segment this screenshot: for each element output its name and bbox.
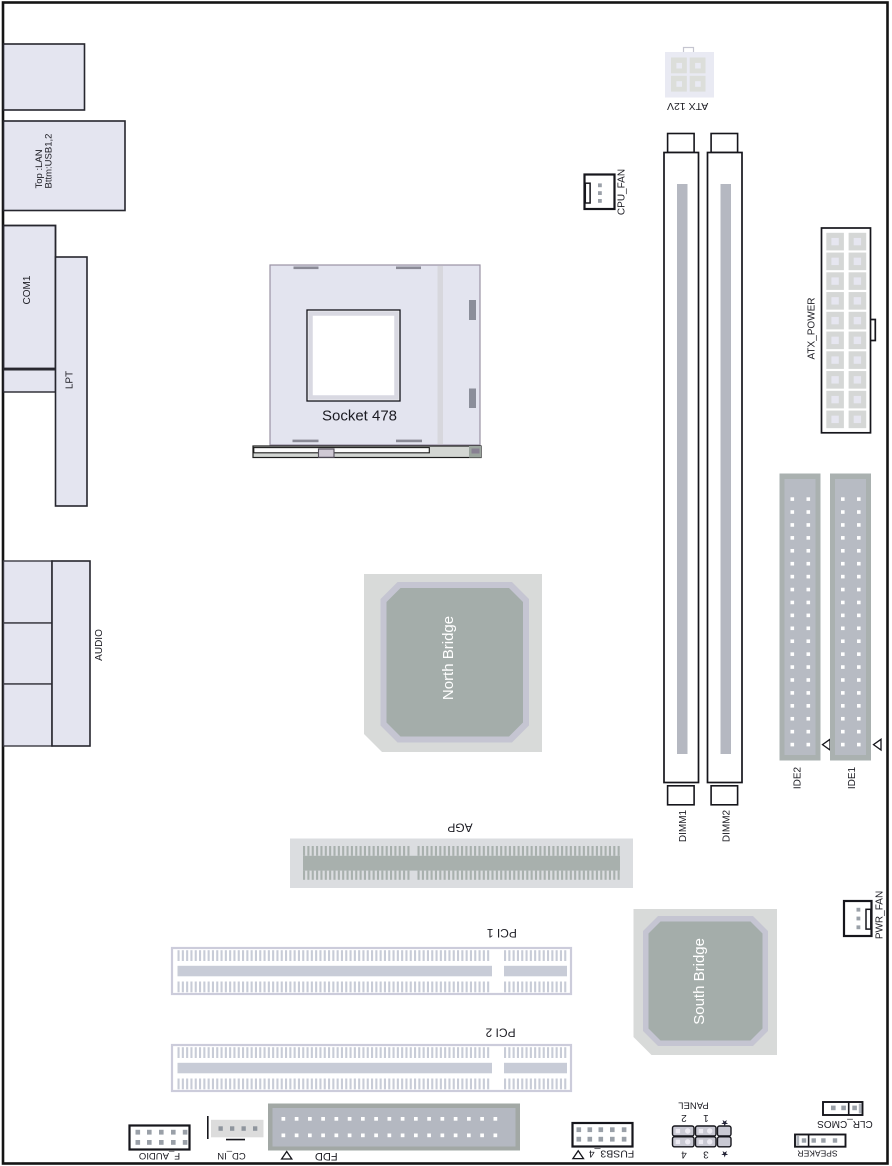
svg-text:CD_IN: CD_IN	[217, 1150, 246, 1161]
svg-text:ATX 12V: ATX 12V	[667, 100, 708, 112]
svg-text:DIMM1: DIMM1	[678, 809, 689, 842]
svg-text:PCI 1: PCI 1	[487, 926, 517, 940]
svg-text:1: 1	[703, 1112, 709, 1123]
svg-text:AUDIO: AUDIO	[94, 629, 105, 661]
svg-text:3: 3	[703, 1148, 709, 1159]
svg-text:★: ★	[721, 1149, 729, 1159]
svg-text:SPEAKER: SPEAKER	[797, 1148, 837, 1158]
svg-text:COM1: COM1	[22, 275, 33, 304]
svg-text:DIMM2: DIMM2	[722, 809, 733, 842]
svg-text:IDE1: IDE1	[847, 766, 858, 789]
svg-text:CLR_CMOS: CLR_CMOS	[817, 1118, 873, 1129]
svg-text:PANEL: PANEL	[678, 1100, 708, 1111]
svg-text:AGP: AGP	[447, 821, 472, 835]
svg-text:IDE2: IDE2	[793, 766, 804, 789]
svg-text:FUSB3_4: FUSB3_4	[589, 1148, 635, 1160]
svg-text:F_AUDIO: F_AUDIO	[139, 1150, 180, 1161]
svg-text:South Bridge: South Bridge	[691, 938, 708, 1025]
svg-text:PCI 2: PCI 2	[485, 1026, 515, 1040]
svg-text:PWR_FAN: PWR_FAN	[875, 891, 886, 939]
svg-text:FDD: FDD	[315, 1150, 338, 1162]
svg-text:ATX_POWER: ATX_POWER	[807, 297, 818, 359]
svg-text:Socket 478: Socket 478	[322, 408, 397, 425]
svg-text:North Bridge: North Bridge	[440, 616, 457, 700]
svg-text:4: 4	[681, 1148, 687, 1159]
svg-text:LPT: LPT	[65, 371, 76, 389]
svg-text:2: 2	[681, 1112, 687, 1123]
svg-text:CPU_FAN: CPU_FAN	[617, 169, 628, 215]
svg-text:Bttm:USB1,2: Bttm:USB1,2	[44, 134, 55, 189]
